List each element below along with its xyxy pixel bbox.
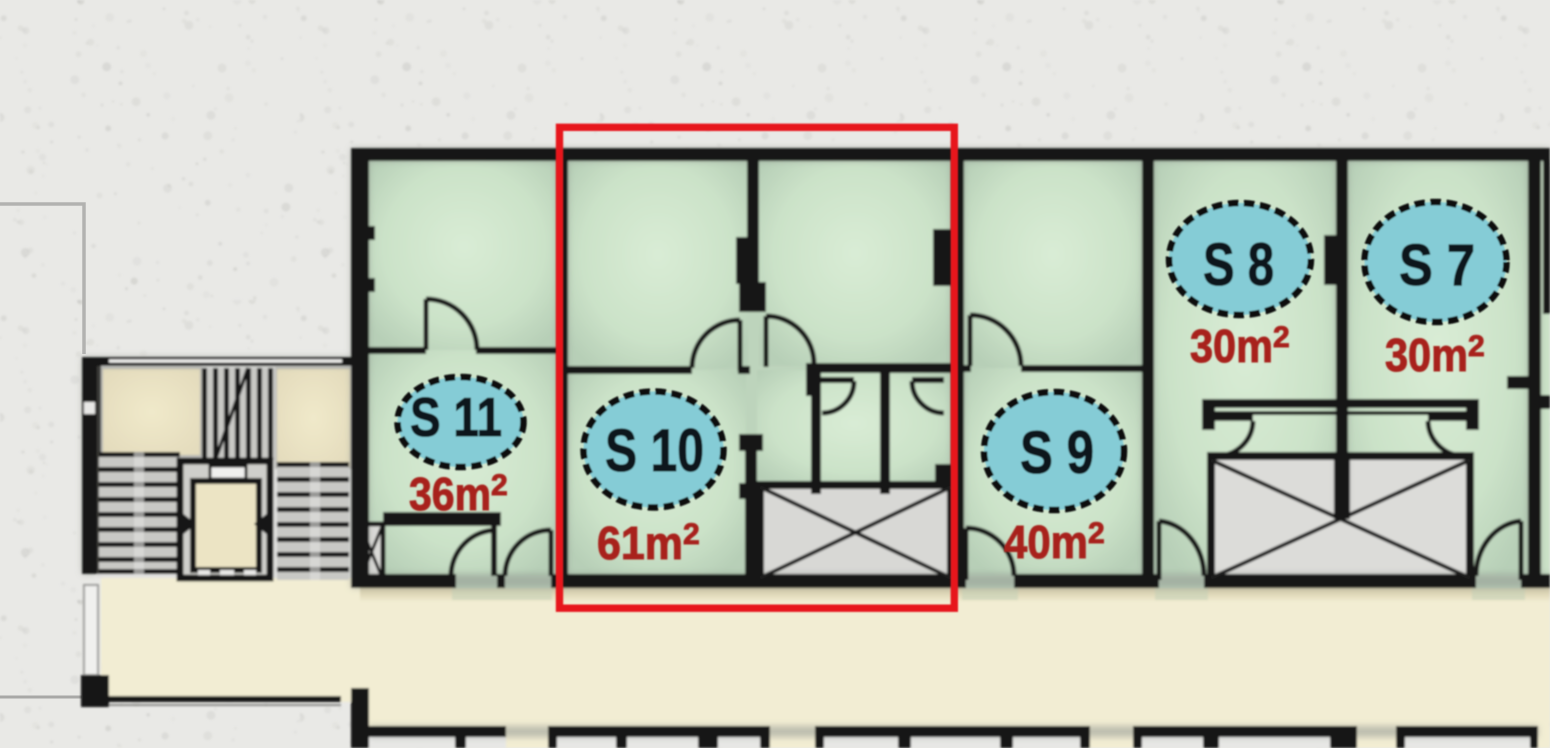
svg-text:S 7: S 7 bbox=[1399, 233, 1475, 298]
svg-text:S 11: S 11 bbox=[410, 386, 502, 448]
svg-text:S 10: S 10 bbox=[605, 417, 704, 484]
svg-text:S 8: S 8 bbox=[1203, 231, 1274, 298]
svg-text:S 9: S 9 bbox=[1020, 419, 1094, 486]
